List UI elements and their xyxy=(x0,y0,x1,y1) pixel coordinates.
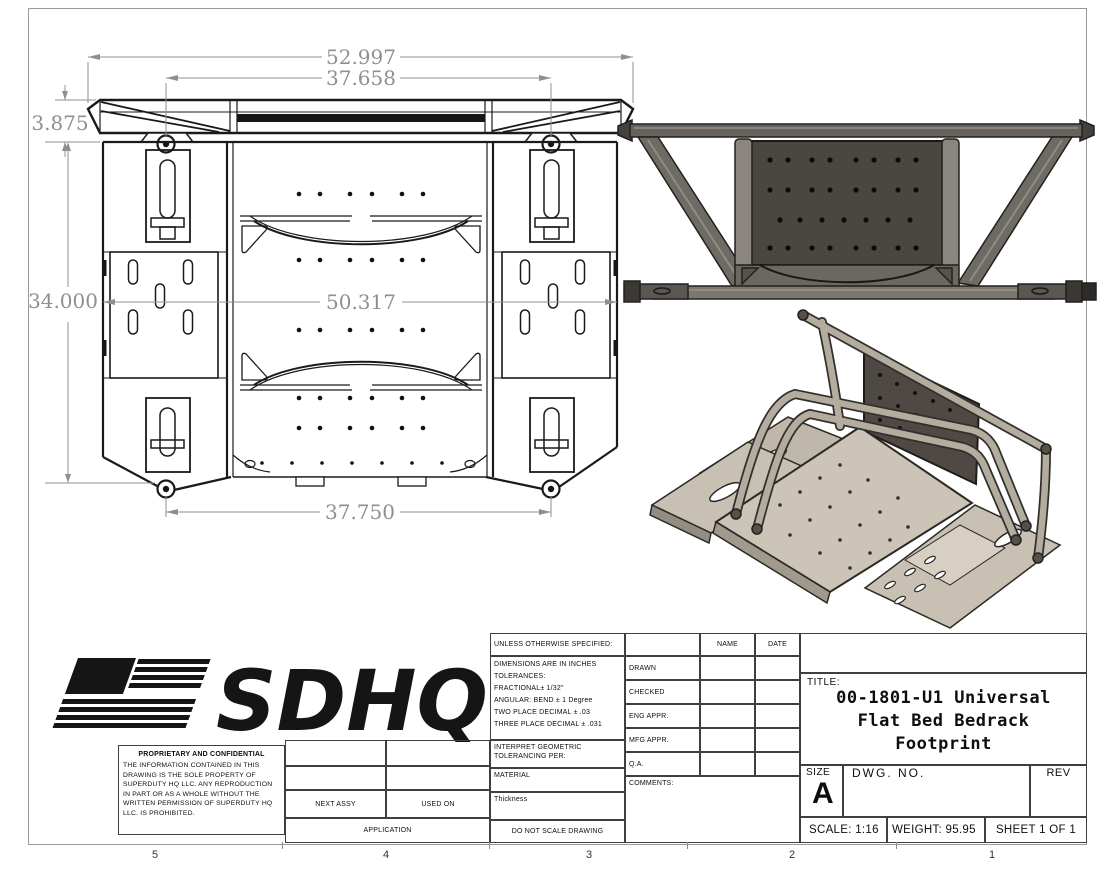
drawn-name-cell xyxy=(700,656,755,680)
tol-line-6: THREE PLACE DECIMAL ± .031 xyxy=(494,719,621,731)
size-label: SIZE xyxy=(806,768,842,777)
svg-text:3.875: 3.875 xyxy=(31,111,88,135)
checked-date-cell xyxy=(755,680,800,704)
svg-text:37.658: 37.658 xyxy=(326,66,396,90)
app-grid-cell-blank1 xyxy=(285,740,386,766)
title-line-3: Footprint xyxy=(807,733,1080,756)
dimension-depth: 34.000 xyxy=(28,142,155,483)
eng-appr-name-cell xyxy=(700,704,755,728)
row-qa: Q.A. xyxy=(625,752,700,776)
weight-cell: WEIGHT: 95.95 xyxy=(887,817,985,843)
flag-icon xyxy=(53,658,211,728)
dimension-bar-height: 3.875 xyxy=(31,85,100,157)
front-3d-view xyxy=(618,120,1096,302)
left-side-plate xyxy=(103,150,227,472)
tolerance-cell: DIMENSIONS ARE IN INCHES TOLERANCES: FRA… xyxy=(490,656,625,740)
do-not-scale-cell: DO NOT SCALE DRAWING xyxy=(490,820,625,843)
tol-line-4: ANGULAR: BEND ± 1 Degree xyxy=(494,695,621,707)
zone-label-1: 1 xyxy=(977,849,1007,861)
row-checked: CHECKED xyxy=(625,680,700,704)
scale-cell: SCALE: 1:16 xyxy=(800,817,887,843)
title-label: TITLE: xyxy=(807,678,1080,687)
company-logo: SDHQ xyxy=(48,648,488,746)
row-mfg-appr: MFG APPR. xyxy=(625,728,700,752)
title-area-top-strip xyxy=(800,633,1087,673)
dimension-width-bottom: 37.750 xyxy=(166,497,551,524)
app-grid-cell-blank2 xyxy=(386,740,490,766)
thickness-cell: Thickness xyxy=(490,792,625,820)
zone-tick-1 xyxy=(282,842,283,849)
drawn-date-cell xyxy=(755,656,800,680)
date-header: DATE xyxy=(755,633,800,656)
tol-line-3: FRACTIONAL± 1/32" xyxy=(494,683,621,695)
svg-text:34.000: 34.000 xyxy=(28,289,98,313)
approval-header-blank xyxy=(625,633,700,656)
tol-line-5: TWO PLACE DECIMAL ± .03 xyxy=(494,707,621,719)
zone-tick-4 xyxy=(896,842,897,849)
checked-name-cell xyxy=(700,680,755,704)
dwg-no-label: DWG. NO. xyxy=(852,769,1029,778)
row-eng-appr: ENG APPR. xyxy=(625,704,700,728)
zone-label-2: 2 xyxy=(777,849,807,861)
sheet-cell: SHEET 1 OF 1 xyxy=(985,817,1087,843)
size-value: A xyxy=(812,779,842,809)
qa-name-cell xyxy=(700,752,755,776)
mfg-appr-date-cell xyxy=(755,728,800,752)
unless-otherwise-cell: UNLESS OTHERWISE SPECIFIED: xyxy=(490,633,625,656)
zone-label-4: 4 xyxy=(371,849,401,861)
title-box: TITLE: 00-1801-U1 Universal Flat Bed Bed… xyxy=(800,673,1087,765)
rev-cell: REV xyxy=(1030,765,1087,817)
proprietary-title: PROPRIETARY AND CONFIDENTIAL xyxy=(121,750,282,759)
title-line-1: 00-1801-U1 Universal xyxy=(807,687,1080,710)
app-grid-cell-blank3 xyxy=(285,766,386,790)
zone-label-5: 5 xyxy=(140,849,170,861)
zone-tick-2 xyxy=(489,842,490,849)
size-cell: SIZE A xyxy=(800,765,843,817)
logo-text: SDHQ xyxy=(216,652,488,746)
drawing-sheet: 52.997 37.658 3.875 34.000 xyxy=(0,0,1107,889)
used-on-cell: USED ON xyxy=(386,790,490,818)
name-header: NAME xyxy=(700,633,755,656)
application-cell: APPLICATION xyxy=(285,818,490,843)
tol-line-1: DIMENSIONS ARE IN INCHES xyxy=(494,659,621,671)
svg-text:37.750: 37.750 xyxy=(325,500,395,524)
proprietary-box: PROPRIETARY AND CONFIDENTIAL THE INFORMA… xyxy=(118,745,285,835)
interpret-cell: INTERPRET GEOMETRIC TOLERANCING PER: xyxy=(490,740,625,768)
center-panel-cutouts xyxy=(233,216,487,486)
zone-label-3: 3 xyxy=(574,849,604,861)
tol-line-2: TOLERANCES: xyxy=(494,671,621,683)
proprietary-body: THE INFORMATION CONTAINED IN THIS DRAWIN… xyxy=(123,761,280,819)
dimension-width-mid: 50.317 xyxy=(103,290,617,314)
material-cell: MATERIAL xyxy=(490,768,625,792)
eng-appr-date-cell xyxy=(755,704,800,728)
zone-tick-3 xyxy=(687,842,688,849)
rev-label: REV xyxy=(1031,769,1086,778)
svg-text:50.317: 50.317 xyxy=(326,290,396,314)
qa-date-cell xyxy=(755,752,800,776)
title-line-2: Flat Bed Bedrack xyxy=(807,710,1080,733)
dwg-no-cell: DWG. NO. xyxy=(843,765,1030,817)
isometric-3d-view xyxy=(650,310,1060,628)
comments-cell: COMMENTS: xyxy=(625,776,800,843)
mfg-appr-name-cell xyxy=(700,728,755,752)
next-assy-cell: NEXT ASSY xyxy=(285,790,386,818)
row-drawn: DRAWN xyxy=(625,656,700,680)
app-grid-cell-blank4 xyxy=(386,766,490,790)
right-side-plate xyxy=(493,150,617,472)
